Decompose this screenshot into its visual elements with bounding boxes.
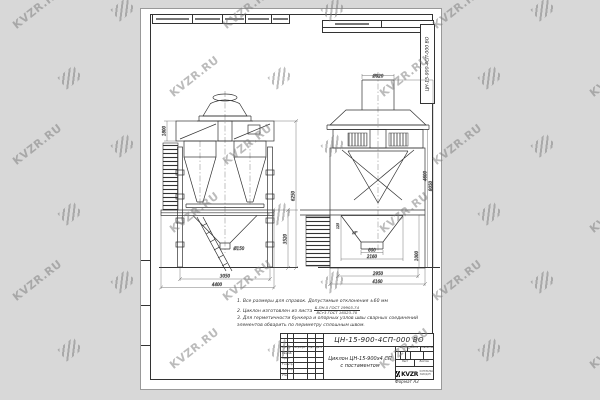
dim-label: 3050 — [220, 274, 231, 279]
ladder — [163, 143, 178, 210]
dim-label: 2160 — [367, 254, 378, 259]
inlet-louver — [348, 133, 367, 146]
dim-label: 8050 — [428, 180, 433, 191]
dim-label: 4400 — [212, 282, 223, 287]
dim-label: Ø150 — [233, 246, 245, 251]
inlet-louver — [389, 133, 408, 146]
dim-label: 1800 — [162, 125, 167, 136]
drawing-screenshot: ЦН-15-900-4СП-000 ВО — [0, 0, 600, 400]
ladder-side — [306, 216, 330, 266]
dim-label: 1000 — [414, 250, 419, 261]
dim-label: 600 — [368, 248, 376, 253]
dim-label: 4160 — [372, 279, 383, 284]
dim-label: Ø920 — [372, 74, 384, 79]
front-view: 3050 4400 3520 6250 1800 Ø150 — [159, 91, 298, 290]
dim-label: 4600 — [422, 170, 427, 181]
dim-label: 2950 — [373, 271, 384, 276]
dim-label: 3520 — [283, 233, 288, 244]
dim-label: 15° — [352, 231, 358, 235]
side-view: Ø920 600 2160 2950 4160 1000 4600 8050 1… — [300, 72, 440, 286]
dim-label: 125 — [336, 223, 340, 229]
dim-label: 6250 — [291, 190, 296, 201]
cad-views: 3050 4400 3520 6250 1800 Ø150 — [0, 0, 600, 400]
side-dimensions: Ø920 600 2160 2950 4160 1000 4600 8050 1… — [328, 74, 433, 287]
